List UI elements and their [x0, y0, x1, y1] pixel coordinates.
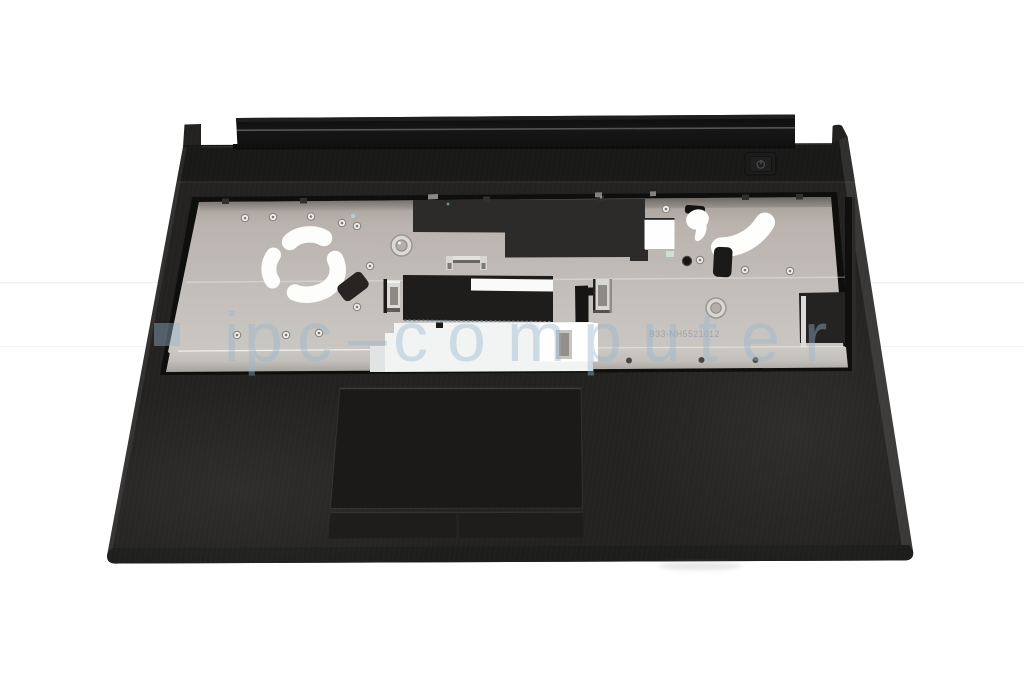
svg-text:p: p [244, 298, 283, 376]
svg-text:i: i [224, 298, 240, 376]
svg-text:m: m [507, 298, 565, 376]
svg-text:–: – [348, 298, 387, 376]
svg-text:c: c [393, 298, 428, 376]
svg-text:p: p [583, 298, 622, 376]
svg-text:e: e [741, 298, 780, 376]
svg-text:c: c [297, 298, 332, 376]
svg-text:t: t [698, 298, 717, 376]
svg-text:r: r [804, 298, 827, 376]
svg-text:o: o [447, 298, 486, 376]
svg-text:u: u [642, 298, 681, 376]
